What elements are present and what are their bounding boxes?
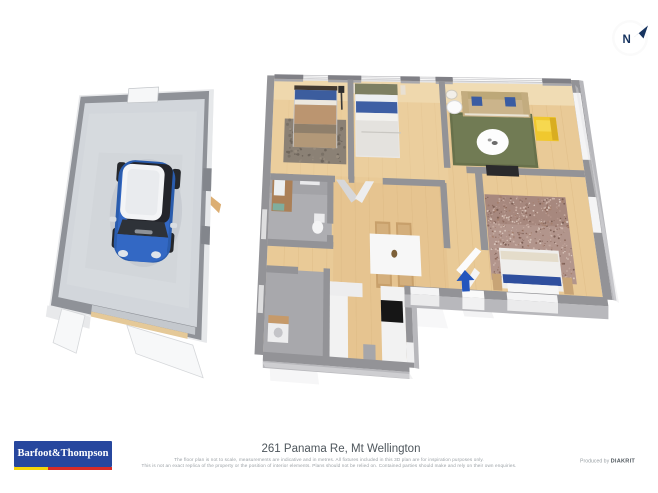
svg-text:N: N bbox=[623, 34, 631, 46]
